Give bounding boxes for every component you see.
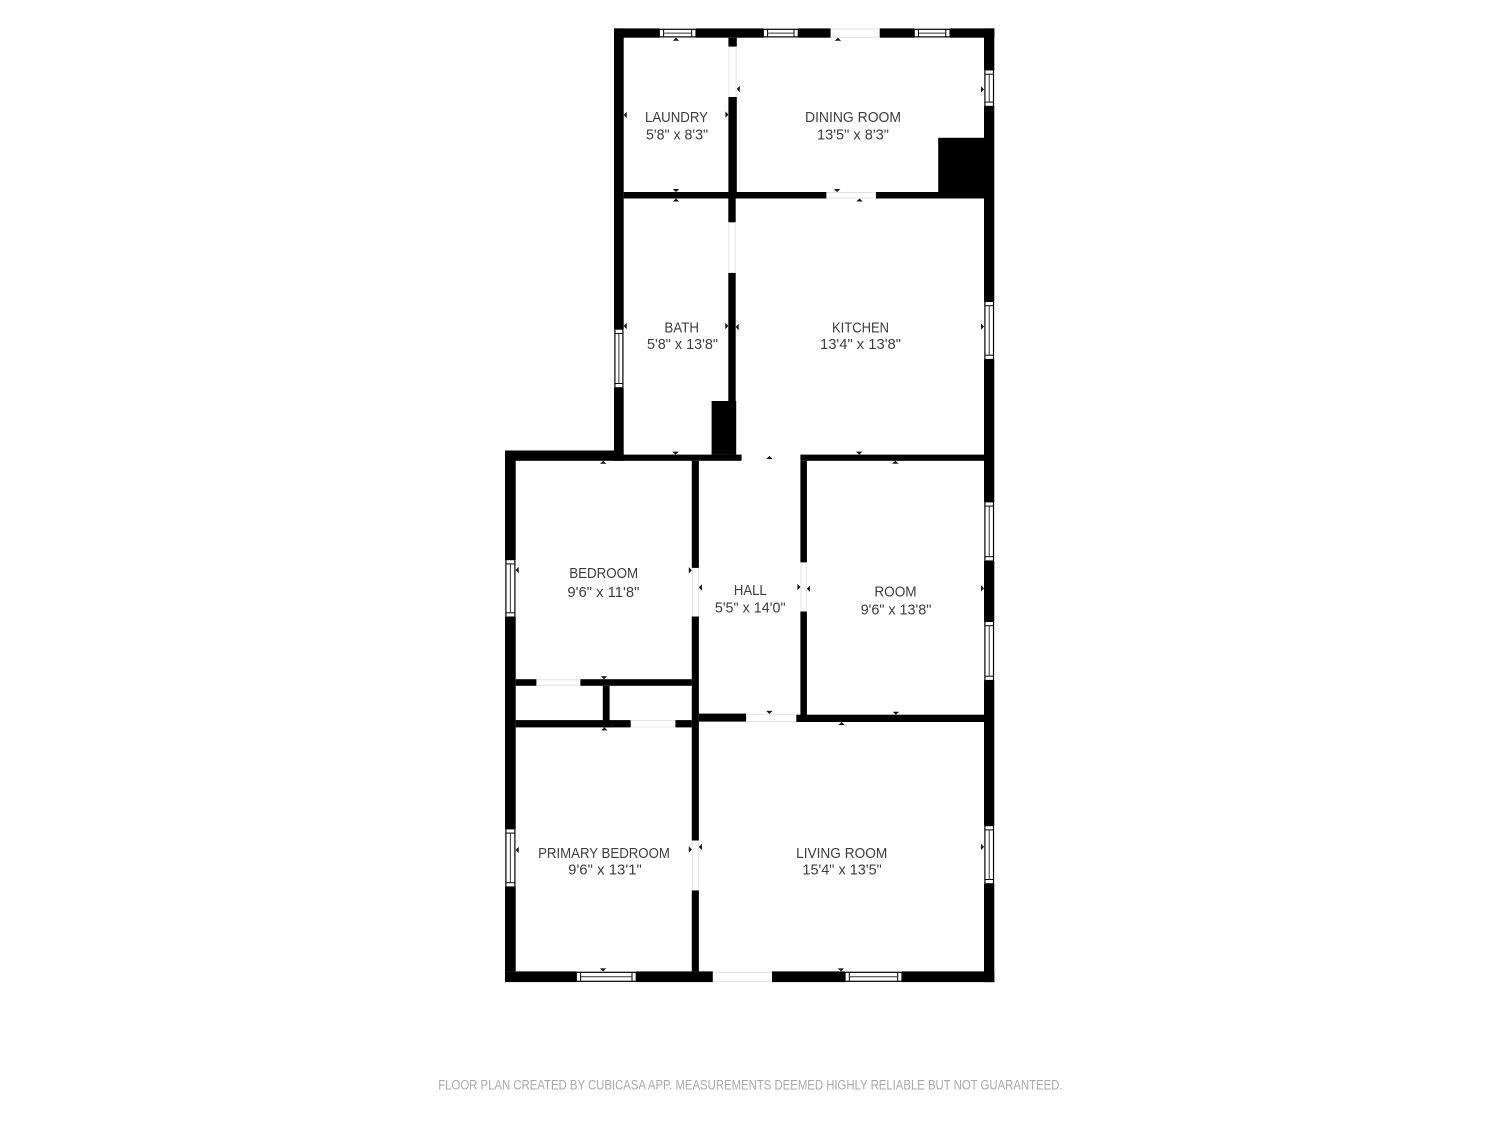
svg-text:FLOOR PLAN CREATED BY CUBICASA: FLOOR PLAN CREATED BY CUBICASA APP. MEAS… — [438, 1078, 1062, 1093]
svg-text:5'8" x 8'3": 5'8" x 8'3" — [646, 127, 708, 144]
svg-text:LIVING ROOM: LIVING ROOM — [796, 845, 887, 862]
svg-text:PRIMARY BEDROOM: PRIMARY BEDROOM — [538, 845, 670, 862]
svg-text:9'6" x 11'8": 9'6" x 11'8" — [567, 584, 639, 601]
svg-text:5'8" x 13'8": 5'8" x 13'8" — [647, 336, 718, 353]
svg-text:9'6" x 13'8": 9'6" x 13'8" — [861, 602, 932, 619]
svg-text:LAUNDRY: LAUNDRY — [645, 109, 708, 126]
svg-text:HALL: HALL — [734, 582, 767, 599]
svg-text:5'5" x 14'0": 5'5" x 14'0" — [715, 599, 786, 616]
svg-text:15'4" x 13'5": 15'4" x 13'5" — [802, 862, 881, 879]
svg-text:13'5" x 8'3": 13'5" x 8'3" — [817, 127, 889, 144]
svg-text:9'6" x 13'1": 9'6" x 13'1" — [568, 862, 642, 879]
svg-text:DINING ROOM: DINING ROOM — [805, 109, 901, 126]
svg-text:ROOM: ROOM — [874, 584, 916, 601]
svg-text:BATH: BATH — [664, 320, 699, 337]
svg-text:13'4" x 13'8": 13'4" x 13'8" — [820, 336, 901, 353]
svg-text:KITCHEN: KITCHEN — [832, 320, 889, 337]
svg-text:BEDROOM: BEDROOM — [569, 565, 638, 582]
